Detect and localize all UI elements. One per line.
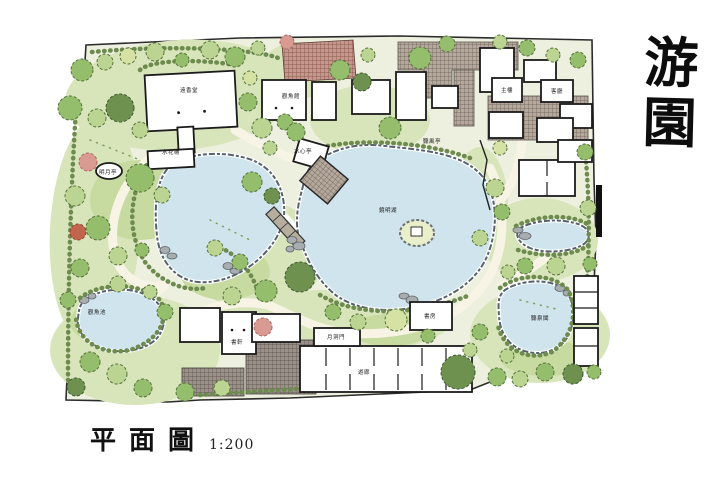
- drawing-caption: 平面圖 1:200: [90, 420, 254, 457]
- map-label: 月洞門: [327, 333, 345, 341]
- map-label: 遠香堂: [180, 86, 198, 94]
- title-calligraphy: 游園: [626, 33, 699, 155]
- north-room: [312, 82, 336, 120]
- map-label: 書房: [424, 312, 436, 320]
- map-label: 鏡明湖: [379, 206, 397, 214]
- map-label: 觀魚館: [282, 92, 300, 100]
- east-edge-rooms: [574, 276, 598, 366]
- map-label: 明月亭: [99, 168, 117, 176]
- map-label: 客廳: [551, 87, 563, 95]
- lake-island: [400, 220, 434, 246]
- caption-title: 平面圖: [90, 420, 207, 457]
- garden-plan-sheet: 遠香堂水花榭明月亭觀魚館水心亭聽風亭鏡明湖觀魚池書軒月洞門遊廊書房聽泉閣主樓客廳…: [0, 0, 714, 500]
- east-wall-bar: [596, 185, 602, 237]
- map-label: 遊廊: [358, 368, 370, 376]
- map-label: 書軒: [231, 338, 243, 346]
- map-label: 聽泉閣: [531, 314, 549, 322]
- caption-scale: 1:200: [209, 437, 254, 453]
- map-label: 水花榭: [162, 148, 180, 156]
- main-hall: [145, 71, 238, 132]
- map-label: 聽風亭: [423, 137, 441, 145]
- map-label: 主樓: [501, 86, 513, 94]
- map-label: 水心亭: [294, 147, 312, 155]
- map-label: 觀魚池: [88, 308, 106, 316]
